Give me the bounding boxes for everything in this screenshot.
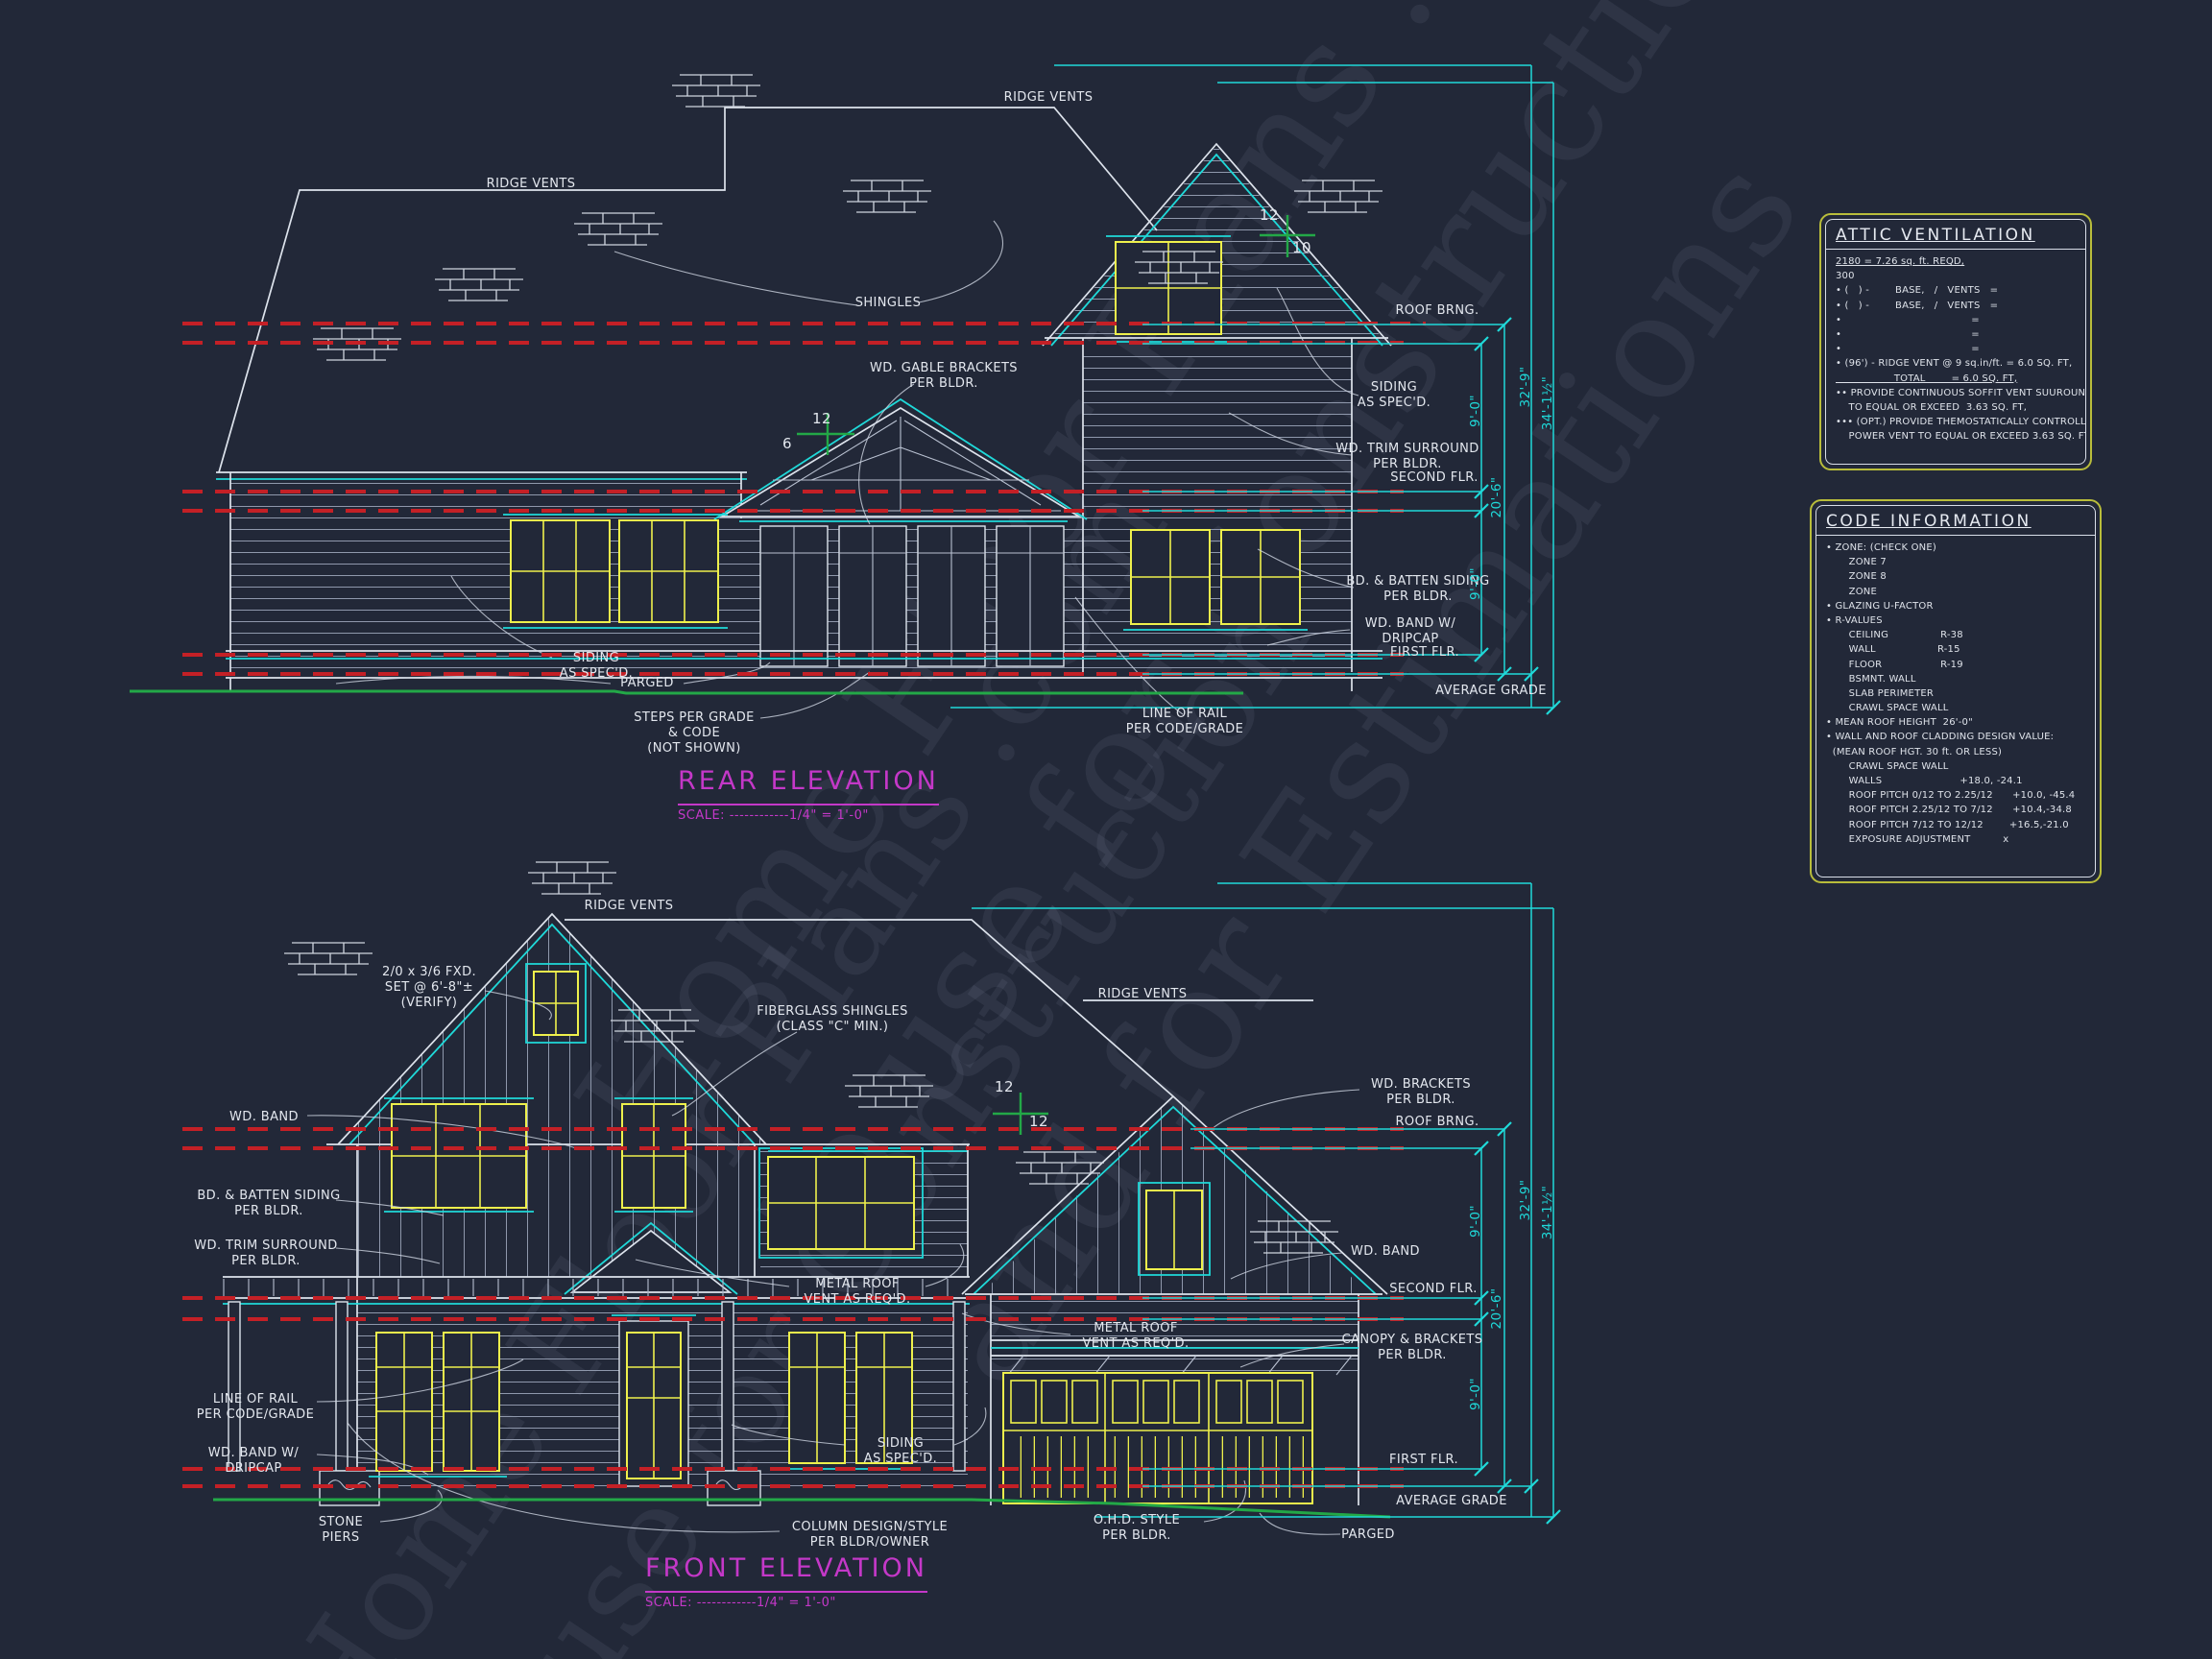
attic-ventilation-line: ••• (OPT.) PROVIDE THEMOSTATICALLY CONTR… [1836,415,2076,429]
code-information-line: ROOF PITCH 2.25/12 TO 7/12 +10.4,-34.8 [1826,803,2085,817]
code-information-line: WALLS +18.0, -24.1 [1826,774,2085,788]
rear-house-linework [216,75,1391,718]
attic-ventilation-line: • = [1836,313,2076,327]
code-information-line: • WALL AND ROOF CLADDING DESIGN VALUE: [1826,730,2085,744]
rear-elevation-scale: SCALE: ------------1/4" = 1'-0" [678,805,939,823]
rear-grade-line [130,691,1243,693]
code-information-box: CODE INFORMATION • ZONE: (CHECK ONE) ZON… [1810,499,2102,883]
code-information-line: ZONE 7 [1826,555,2085,569]
attic-ventilation-line: 2180 = 7.26 sq. ft. REQD, [1836,254,2076,269]
attic-ventilation-line: • ( ) - BASE, / VENTS = [1836,283,2076,298]
rear-elevation-title-block: REAR ELEVATION SCALE: ------------1/4" =… [678,766,939,823]
attic-ventilation-line: 300 [1836,269,2076,283]
code-information-line: • R-VALUES [1826,613,2085,628]
attic-ventilation-line: • = [1836,342,2076,356]
code-information-line: ROOF PITCH 7/12 TO 12/12 +16.5,-21.0 [1826,818,2085,832]
code-information-line: CEILING R-38 [1826,628,2085,642]
code-information-line: SLAB PERIMETER [1826,686,2085,701]
front-elevation-title-block: FRONT ELEVATION SCALE: ------------1/4" … [645,1553,927,1610]
attic-ventilation-line: TOTAL = 6.0 SQ. FT, [1836,372,2076,386]
attic-ventilation-box: ATTIC VENTILATION 2180 = 7.26 sq. ft. RE… [1819,213,2092,470]
code-information-line: EXPOSURE ADJUSTMENT x [1826,832,2085,847]
code-information-line: ZONE [1826,585,2085,599]
attic-ventilation-title: ATTIC VENTILATION [1836,226,2035,245]
code-information-line: • GLAZING U-FACTOR [1826,599,2085,613]
attic-ventilation-line: TO EQUAL OR EXCEED 3.63 SQ. FT, [1836,400,2076,415]
code-information-line: ZONE 8 [1826,569,2085,584]
code-information-line: FLOOR R-19 [1826,658,2085,672]
rear-elevation-title: REAR ELEVATION [678,766,939,805]
attic-ventilation-line: • ( ) - BASE, / VENTS = [1836,299,2076,313]
attic-ventilation-line: • = [1836,327,2076,342]
front-house-linework [223,862,1387,1534]
code-information-line: • ZONE: (CHECK ONE) [1826,541,2085,555]
code-information-line: ROOF PITCH 0/12 TO 2.25/12 +10.0, -45.4 [1826,788,2085,803]
attic-ventilation-line: •• PROVIDE CONTINUOUS SOFFIT VENT SUUROU… [1836,386,2076,400]
code-information-line: CRAWL SPACE WALL [1826,701,2085,715]
code-information-line: • MEAN ROOF HEIGHT 26'-0" [1826,715,2085,730]
code-information-line: BSMNT. WALL [1826,672,2085,686]
code-information-line: WALL R-15 [1826,642,2085,657]
front-elevation-scale: SCALE: ------------1/4" = 1'-0" [645,1593,927,1610]
code-information-line: CRAWL SPACE WALL [1826,759,2085,774]
attic-ventilation-line: • (96') - RIDGE VENT @ 9 sq.in/ft. = 6.0… [1836,356,2076,371]
front-elevation-title: FRONT ELEVATION [645,1553,927,1593]
code-information-line: (MEAN ROOF HGT. 30 ft. OR LESS) [1826,745,2085,759]
attic-ventilation-line: POWER VENT TO EQUAL OR EXCEED 3.63 SQ. F… [1836,429,2076,444]
blueprint-sheet: Home Floor Plans .com to use for Constru… [0,0,2212,1659]
code-information-title: CODE INFORMATION [1826,512,2032,531]
